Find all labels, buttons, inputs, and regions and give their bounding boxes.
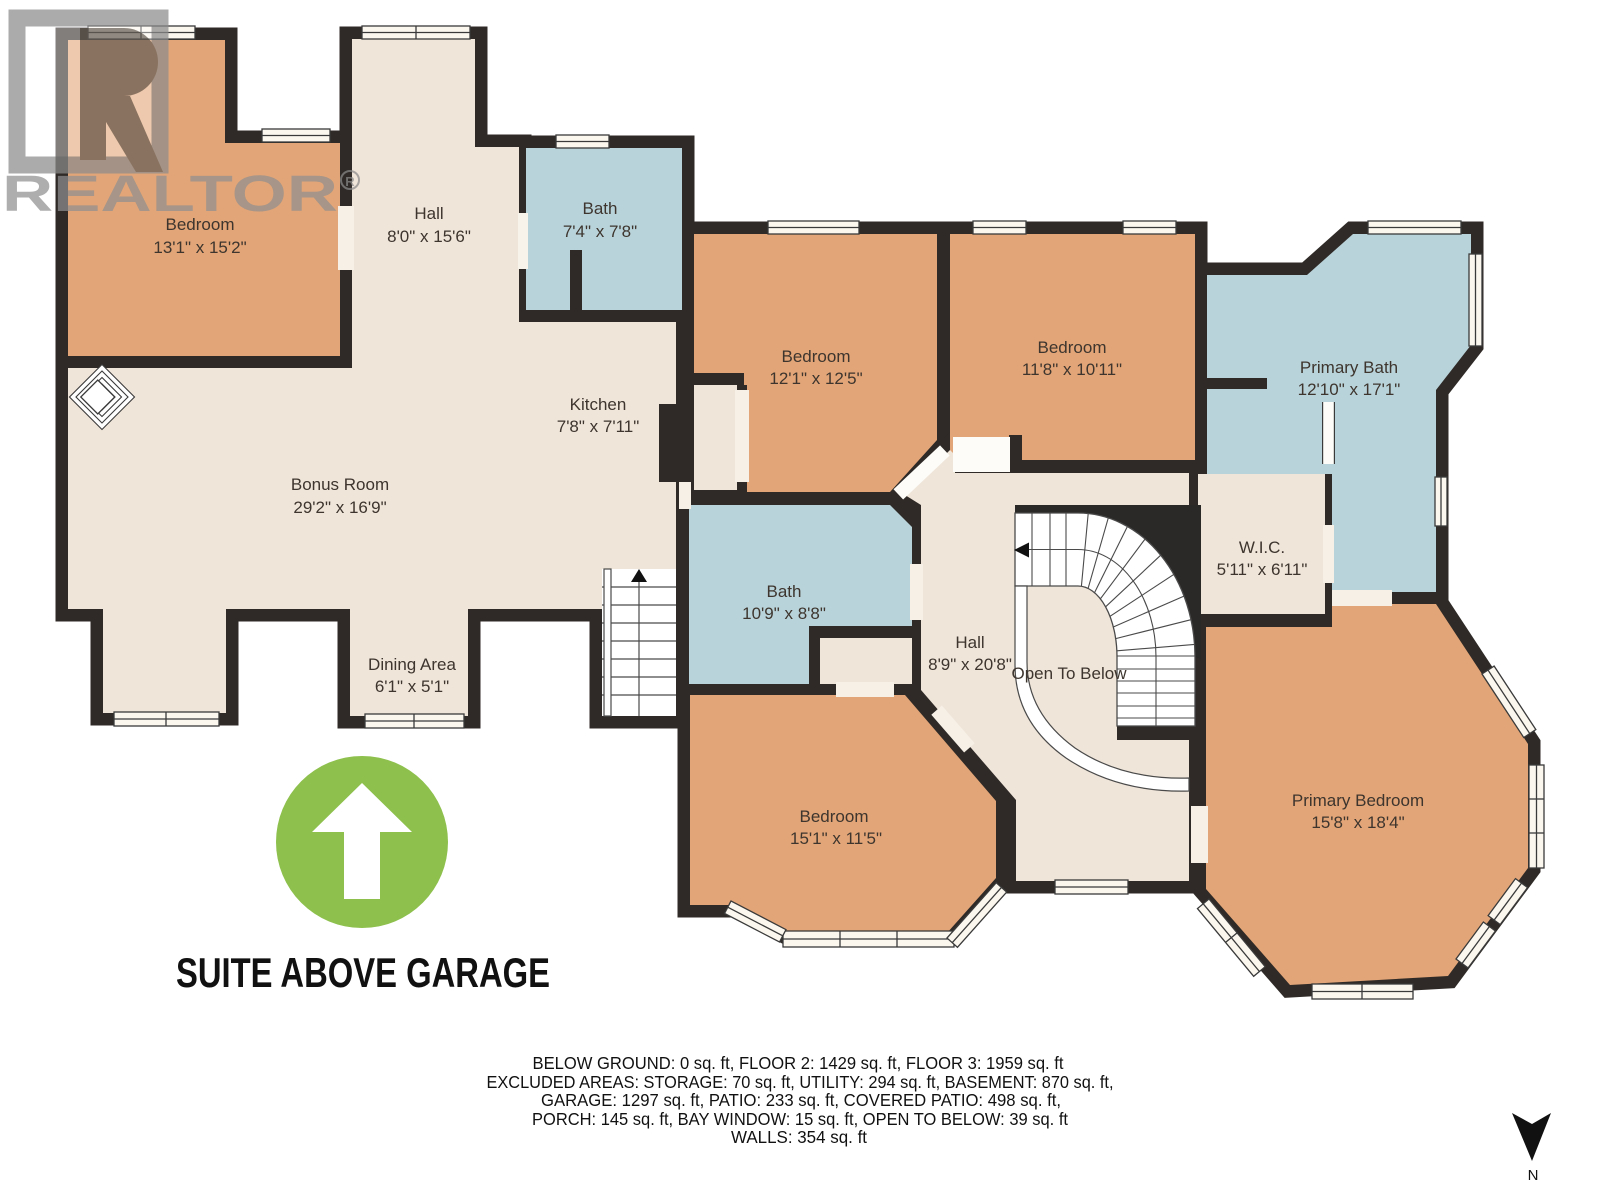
svg-text:Bedroom: Bedroom [800,807,869,826]
svg-text:8'9" x 20'8": 8'9" x 20'8" [928,655,1012,674]
svg-text:PORCH: 145 sq. ft, BAY WINDOW:: PORCH: 145 sq. ft, BAY WINDOW: 15 sq. ft… [532,1109,1068,1129]
svg-text:W.I.C.: W.I.C. [1239,538,1285,557]
svg-text:10'9" x 8'8": 10'9" x 8'8" [742,604,826,623]
svg-text:15'8" x 18'4": 15'8" x 18'4" [1311,813,1404,832]
svg-text:5'11" x 6'11": 5'11" x 6'11" [1217,560,1308,579]
svg-text:Hall: Hall [414,204,443,223]
svg-text:15'1" x 11'5": 15'1" x 11'5" [790,829,882,848]
svg-text:Bath: Bath [583,199,618,218]
svg-text:11'8" x 10'11": 11'8" x 10'11" [1022,360,1122,379]
svg-text:Bath: Bath [767,582,802,601]
svg-text:7'4" x 7'8": 7'4" x 7'8" [563,222,637,241]
svg-text:N: N [1528,1167,1539,1184]
svg-text:12'1" x 12'5": 12'1" x 12'5" [769,369,862,388]
svg-text:REALTOR: REALTOR [2,165,338,222]
svg-text:7'8" x 7'11": 7'8" x 7'11" [557,417,640,436]
svg-text:BELOW GROUND: 0 sq. ft, FLOOR: BELOW GROUND: 0 sq. ft, FLOOR 2: 1429 sq… [533,1053,1064,1073]
svg-text:8'0" x 15'6": 8'0" x 15'6" [387,227,471,246]
svg-text:Primary Bath: Primary Bath [1300,358,1398,377]
svg-text:EXCLUDED AREAS: STORAGE: 70 sq: EXCLUDED AREAS: STORAGE: 70 sq. ft, UTIL… [487,1072,1114,1092]
svg-text:Bonus Room: Bonus Room [291,475,389,494]
svg-text:Primary Bedroom: Primary Bedroom [1292,791,1424,810]
svg-text:Kitchen: Kitchen [570,395,627,414]
svg-text:R: R [345,174,355,189]
svg-text:Bedroom: Bedroom [1038,338,1107,357]
svg-text:Hall: Hall [955,633,984,652]
svg-text:Dining Area: Dining Area [368,655,456,674]
svg-text:13'1" x 15'2": 13'1" x 15'2" [153,238,246,257]
svg-text:6'1" x 5'1": 6'1" x 5'1" [375,677,449,696]
svg-text:SUITE ABOVE GARAGE: SUITE ABOVE GARAGE [176,949,550,996]
svg-text:Bedroom: Bedroom [782,347,851,366]
svg-text:12'10" x 17'1": 12'10" x 17'1" [1298,380,1401,399]
svg-text:Open To Below: Open To Below [1012,664,1128,683]
svg-text:29'2" x 16'9": 29'2" x 16'9" [293,498,386,517]
svg-text:WALLS: 354 sq. ft: WALLS: 354 sq. ft [731,1127,867,1147]
svg-text:GARAGE: 1297 sq. ft, PATIO: 23: GARAGE: 1297 sq. ft, PATIO: 233 sq. ft, … [541,1090,1061,1110]
